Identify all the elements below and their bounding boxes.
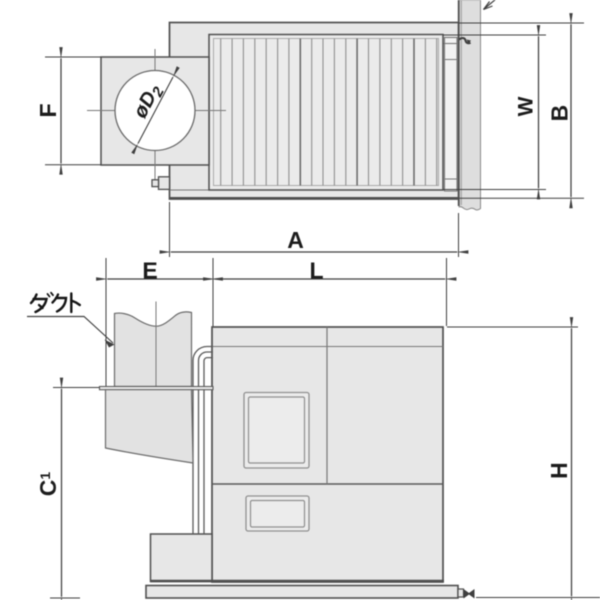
svg-text:B: B [547, 105, 573, 122]
svg-text:H: H [546, 462, 572, 479]
svg-text:A: A [287, 227, 304, 253]
svg-text:C1: C1 [35, 472, 61, 497]
svg-text:W: W [515, 96, 538, 116]
svg-text:E: E [142, 258, 157, 284]
svg-text:F: F [35, 103, 61, 117]
svg-text:L: L [309, 258, 323, 284]
